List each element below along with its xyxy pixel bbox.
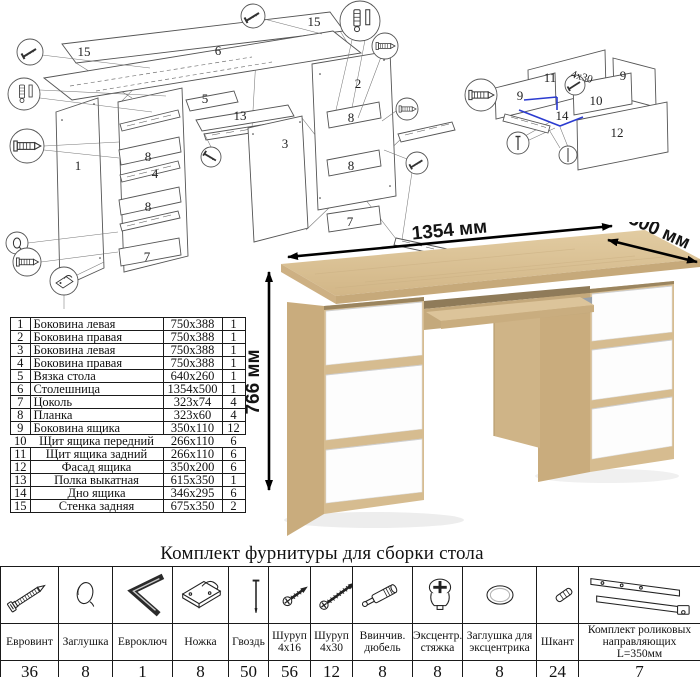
drawer-front	[326, 302, 422, 365]
part-label: 8	[348, 158, 355, 173]
hardware-name: Гвоздь	[229, 624, 269, 661]
part-label: 9	[620, 68, 627, 83]
table-row: 2Боковина правая750x3881	[11, 331, 246, 344]
middle-parts	[186, 91, 308, 242]
cell-name: Планка	[30, 409, 163, 422]
table-row: 8Планка323x604	[11, 409, 246, 422]
part-label: 2	[355, 76, 362, 91]
cell-size: 346x295	[163, 487, 222, 500]
cell-size: 350x110	[163, 422, 222, 435]
euroscrew-icon	[3, 569, 57, 621]
hardware-qty: 12	[311, 661, 353, 677]
cell-name: Стенка задняя	[30, 500, 163, 513]
assembly-sheet: 15 6 15 1 8 4 8 7 5 13 3 2 8 8 7	[0, 0, 700, 677]
table-row: 3Боковина левая750x3881	[11, 344, 246, 357]
table-row: 10Щит ящика передний266x1106	[11, 435, 246, 448]
part-left-side	[56, 98, 104, 288]
cell-size: 675x350	[163, 500, 222, 513]
part-label: 9	[517, 88, 524, 103]
hardware-name: Шкант	[537, 624, 579, 661]
nail-icon	[229, 569, 269, 621]
cell-size: 750x388	[163, 344, 222, 357]
cell-num: 9	[11, 422, 31, 435]
cell-num: 13	[11, 474, 31, 487]
cell-qty: 6	[222, 461, 245, 474]
cell-name: Столешница	[30, 383, 163, 396]
part-label: 3	[282, 136, 289, 151]
cell-qty: 6	[222, 435, 245, 448]
table-row: 14Дно ящика346x2956	[11, 487, 246, 500]
cell-num: 6	[11, 383, 31, 396]
cell-num: 15	[11, 500, 31, 513]
hardware-qty: 8	[173, 661, 229, 677]
cell-size: 323x60	[163, 409, 222, 422]
cell-num: 4	[11, 357, 31, 370]
table-row: 7Цоколь323x744	[11, 396, 246, 409]
cell-name: Боковина ящика	[30, 422, 163, 435]
hardware-name: Евроключ	[113, 624, 173, 661]
table-row: 11Щит ящика задний266x1106	[11, 448, 246, 461]
part-label: 15	[78, 44, 91, 59]
cell-name: Боковина правая	[30, 357, 163, 370]
cell-qty: 1	[222, 474, 245, 487]
cell-num: 1	[11, 318, 31, 331]
cell-name: Щит ящика задний	[30, 448, 163, 461]
hardware-icons-row	[1, 567, 700, 624]
drawer-exploded-diagram: 11 9 9 10 14 12 4x30	[455, 40, 700, 200]
cell-name: Цоколь	[30, 396, 163, 409]
cell-size: 350x200	[163, 461, 222, 474]
cell-qty: 4	[222, 409, 245, 422]
cell-qty: 12	[222, 422, 245, 435]
part-label: 11	[544, 70, 557, 85]
cell-name: Полка выкатная	[30, 474, 163, 487]
table-row: 12Фасад ящика350x2006	[11, 461, 246, 474]
cell-name: Боковина левая	[30, 318, 163, 331]
cell-size: 266x110	[163, 435, 222, 448]
cell-size: 1354x500	[163, 383, 222, 396]
table-row: 15Стенка задняя675x3502	[11, 500, 246, 513]
table-row: 1Боковина левая750x3881	[11, 318, 246, 331]
part-label: 8	[145, 149, 152, 164]
cell-size: 266x110	[163, 448, 222, 461]
cell-num: 10	[11, 435, 31, 448]
hardware-qty: 7	[579, 661, 700, 677]
cell-num: 14	[11, 487, 31, 500]
cell-num: 3	[11, 344, 31, 357]
cam-lock-icon	[413, 569, 463, 621]
table-row: 4Боковина правая750x3881	[11, 357, 246, 370]
part-label: 8	[348, 110, 355, 125]
part-label: 7	[144, 249, 151, 264]
cell-qty: 1	[222, 318, 245, 331]
height-dimension: 766 мм	[245, 349, 264, 414]
hardware-qty: 1	[113, 661, 173, 677]
cell-size: 323x74	[163, 396, 222, 409]
part-label: 13	[234, 108, 247, 123]
hardware-name: Евровинт	[1, 624, 59, 661]
cell-qty: 6	[222, 487, 245, 500]
cell-name: Боковина левая	[30, 344, 163, 357]
cell-name: Вязка стола	[30, 370, 163, 383]
hardware-qty: 56	[269, 661, 311, 677]
part-label: 8	[145, 199, 152, 214]
hardware-qty: 8	[59, 661, 113, 677]
cam-cap-icon	[473, 569, 527, 621]
table-row: 13Полка выкатная615x3501	[11, 474, 246, 487]
hardware-qty: 8	[463, 661, 537, 677]
hardware-qty: 24	[537, 661, 579, 677]
cell-num: 7	[11, 396, 31, 409]
screw-long-icon	[311, 569, 353, 621]
drawer-rail-icon	[581, 569, 699, 621]
table-row: 9Боковина ящика350x11012	[11, 422, 246, 435]
part-label: 4	[152, 166, 159, 181]
cell-size: 750x388	[163, 331, 222, 344]
cell-num: 8	[11, 409, 31, 422]
cell-size: 640x260	[163, 370, 222, 383]
hardware-kit-title: Комплект фурнитуры для сборки стола	[46, 543, 598, 565]
cell-qty: 2	[222, 500, 245, 513]
drawer-front	[326, 365, 422, 440]
cell-name: Боковина правая	[30, 331, 163, 344]
part-label: 10	[590, 93, 603, 108]
cap-icon	[59, 569, 113, 621]
hardware-qty: 50	[229, 661, 269, 677]
cell-qty: 1	[222, 370, 245, 383]
hardware-names-row: Евровинт Заглушка Евроключ Ножка Гвоздь …	[1, 624, 700, 661]
hardware-table: Евровинт Заглушка Евроключ Ножка Гвоздь …	[0, 566, 700, 677]
parts-table: 1Боковина левая750x3881 2Боковина правая…	[10, 317, 246, 513]
part-label: 14	[556, 108, 570, 123]
part-label: 6	[215, 43, 222, 58]
cell-num: 2	[11, 331, 31, 344]
foot-icon	[174, 569, 228, 621]
part-label: 15	[308, 14, 321, 29]
hardware-qty-row: 36 8 1 8 50 56 12 8 8 8 24 7	[1, 661, 700, 677]
screw-short-icon	[269, 569, 311, 621]
hardware-qty: 36	[1, 661, 59, 677]
cell-qty: 1	[222, 344, 245, 357]
hardware-name: Ввинчив. дюбель	[353, 624, 413, 661]
table-row: 6Столешница1354x5001	[11, 383, 246, 396]
cell-qty: 1	[222, 357, 245, 370]
hexkey-icon	[116, 569, 170, 621]
hardware-name: Ножка	[173, 624, 229, 661]
hardware-qty: 8	[413, 661, 463, 677]
part-label: 5	[202, 91, 209, 106]
left-pedestal	[287, 297, 424, 536]
cell-qty: 4	[222, 396, 245, 409]
hardware-name: Эксцентр. стяжка	[413, 624, 463, 661]
cell-name: Щит ящика передний	[30, 435, 163, 448]
cell-num: 5	[11, 370, 31, 383]
cell-qty: 1	[222, 331, 245, 344]
hardware-qty: 8	[353, 661, 413, 677]
cell-qty: 6	[222, 448, 245, 461]
part-label: 1	[75, 158, 82, 173]
cell-size: 750x388	[163, 357, 222, 370]
hardware-name: Заглушка	[59, 624, 113, 661]
hardware-name: Шуруп 4х16	[269, 624, 311, 661]
cell-size: 750x388	[163, 318, 222, 331]
table-row: 5Вязка стола640x2601	[11, 370, 246, 383]
cell-num: 11	[11, 448, 31, 461]
cell-qty: 1	[222, 383, 245, 396]
cell-size: 615x350	[163, 474, 222, 487]
drawer-front	[592, 286, 672, 341]
cell-num: 12	[11, 461, 31, 474]
dowel-screw-icon	[356, 569, 410, 621]
desk-render: 1354 мм 500 мм 766 мм	[245, 222, 700, 547]
hardware-name: Заглушка для эксцентрика	[463, 624, 537, 661]
cell-name: Фасад ящика	[30, 461, 163, 474]
part-label: 12	[611, 125, 624, 140]
wood-dowel-icon	[537, 569, 579, 621]
cell-name: Дно ящика	[30, 487, 163, 500]
hardware-name: Шуруп 4х30	[311, 624, 353, 661]
hardware-name: Комплект роликовых направляющих L=350мм	[579, 624, 700, 661]
